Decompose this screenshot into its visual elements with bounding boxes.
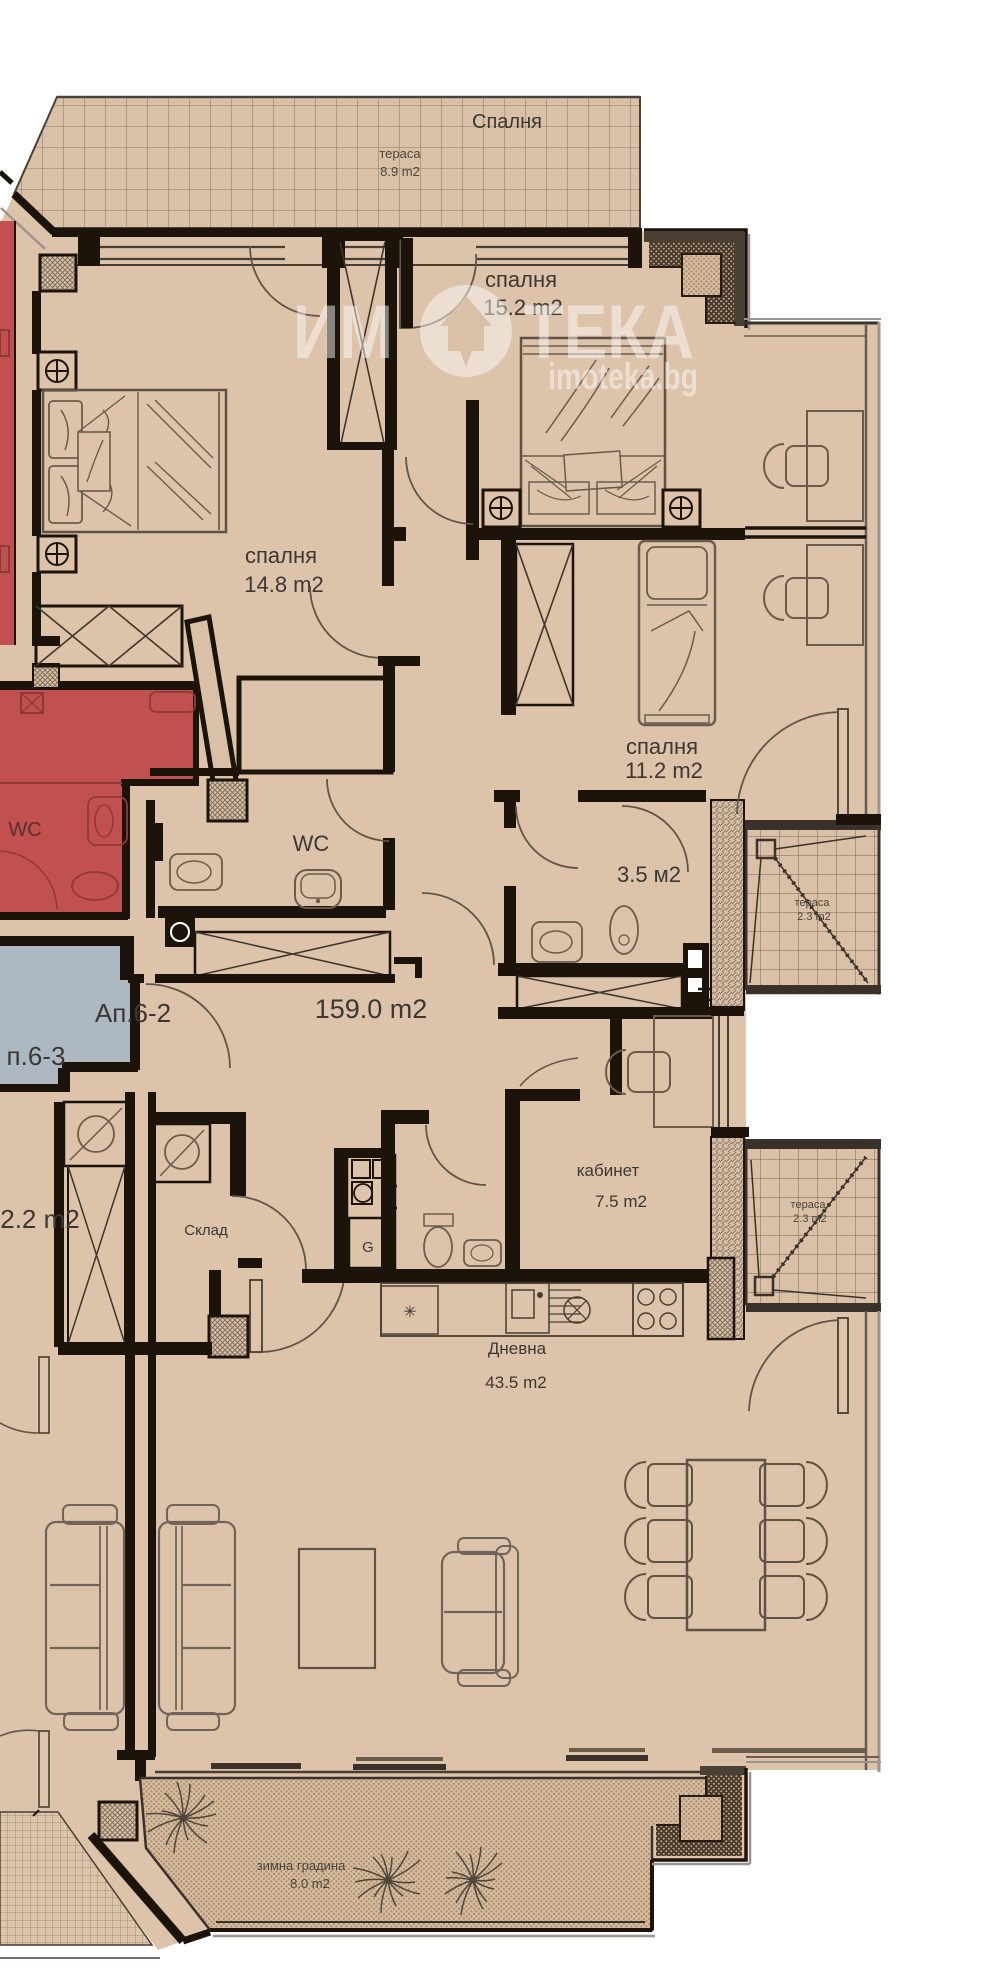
svg-text:тераса: тераса	[795, 897, 831, 909]
svg-text:159.0 m2: 159.0 m2	[315, 994, 428, 1024]
svg-text:8.0 m2: 8.0 m2	[290, 1876, 330, 1891]
svg-text:43.5 m2: 43.5 m2	[485, 1373, 546, 1392]
svg-text:14.8 m2: 14.8 m2	[244, 572, 324, 597]
svg-text:11.2 m2: 11.2 m2	[625, 758, 703, 783]
svg-text:2.2 m2: 2.2 m2	[0, 1204, 80, 1234]
svg-text:Дневна: Дневна	[488, 1339, 547, 1358]
svg-text:imoteka.bg: imoteka.bg	[548, 356, 698, 397]
svg-text:G: G	[362, 1239, 374, 1256]
svg-text:✳: ✳	[403, 1304, 416, 1321]
svg-text:8.9 m2: 8.9 m2	[380, 164, 420, 179]
svg-text:2.3 m2: 2.3 m2	[793, 1213, 827, 1225]
svg-text:Ап.6-2: Ап.6-2	[95, 998, 171, 1028]
svg-text:Склад: Склад	[184, 1222, 228, 1239]
svg-text:зимна градина: зимна градина	[257, 1858, 346, 1873]
svg-text:ИМ: ИМ	[293, 290, 393, 375]
svg-text:Спалня: Спалня	[472, 111, 542, 133]
svg-text:WC: WC	[8, 819, 41, 841]
svg-text:2.3 m2: 2.3 m2	[797, 911, 831, 923]
svg-text:п.6-3: п.6-3	[7, 1041, 66, 1071]
svg-text:3.5 м2: 3.5 м2	[617, 862, 681, 887]
svg-text:спалня: спалня	[485, 267, 557, 292]
svg-text:тераса: тераса	[791, 1199, 827, 1211]
svg-text:7.5 m2: 7.5 m2	[595, 1192, 647, 1211]
svg-text:кабинет: кабинет	[577, 1161, 640, 1180]
svg-text:спалня: спалня	[245, 543, 317, 568]
svg-text:тераса: тераса	[379, 146, 421, 161]
svg-text:WC: WC	[293, 831, 330, 856]
svg-text:спалня: спалня	[626, 734, 698, 759]
